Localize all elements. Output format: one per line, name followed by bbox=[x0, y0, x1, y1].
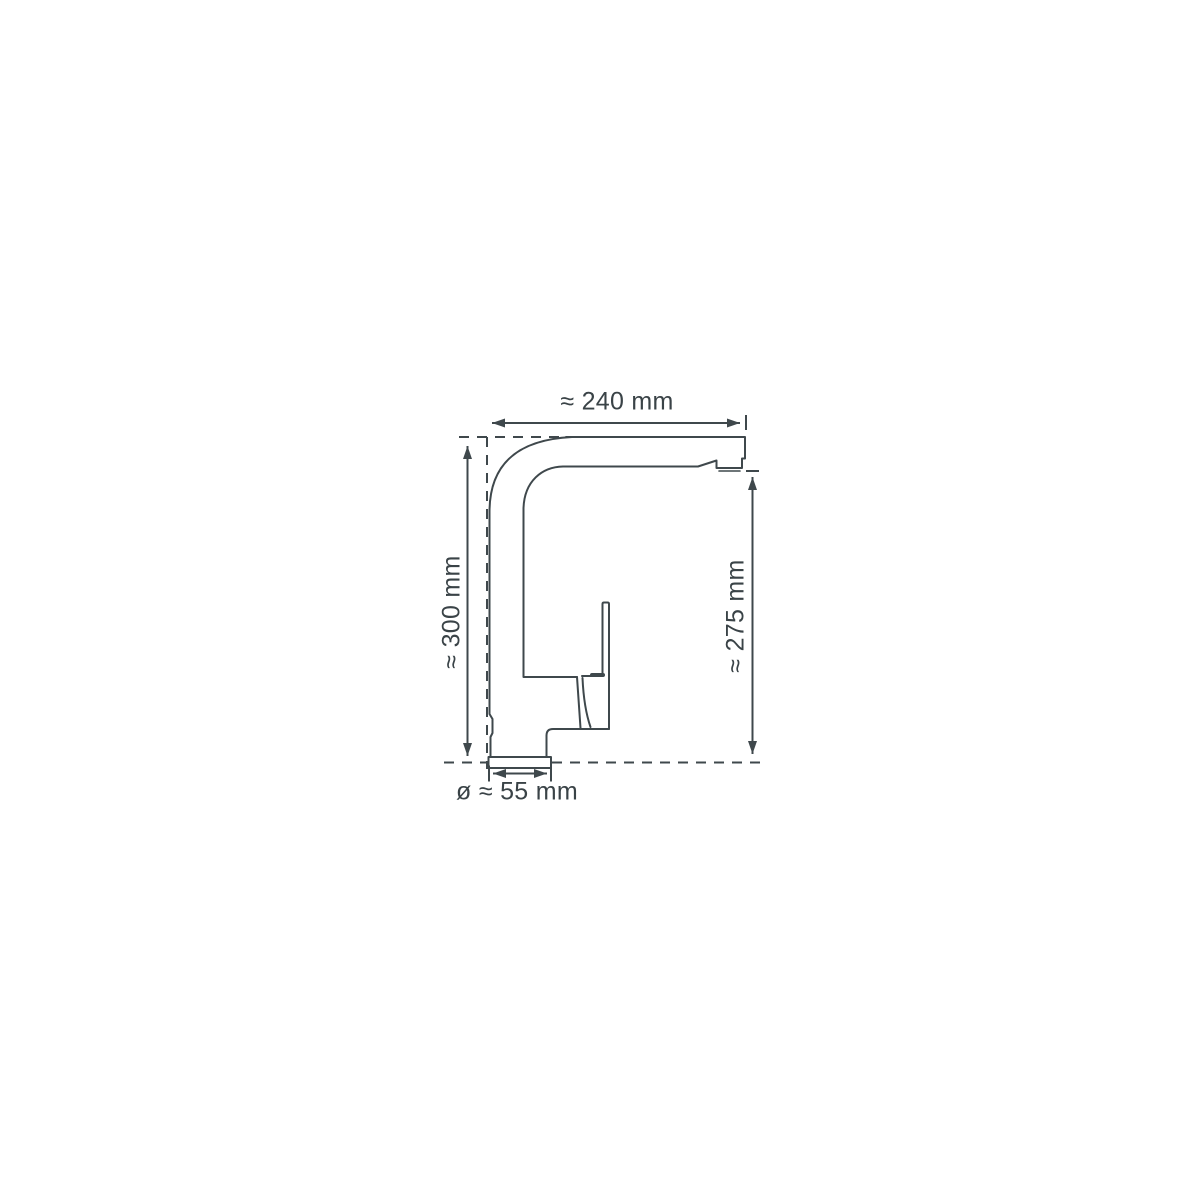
handle-hub-front-edge bbox=[577, 677, 581, 728]
dimension-arrows bbox=[468, 415, 760, 782]
faucet-technical-drawing bbox=[0, 0, 1200, 1200]
base-plate bbox=[489, 757, 552, 768]
faucet-dimension-diagram: ≈ 240 mm ≈ 300 mm ≈ 275 mm ø ≈ 55 mm bbox=[0, 0, 1200, 1200]
width-dimension-label: ≈ 240 mm bbox=[560, 388, 673, 417]
total-height-dimension-label: ≈ 300 mm bbox=[438, 555, 467, 668]
faucet-outline bbox=[489, 437, 746, 768]
body-shoulder-outline bbox=[547, 729, 610, 757]
handle-hub-inner-edge bbox=[583, 678, 591, 727]
spout-outline bbox=[524, 437, 746, 677]
base-diameter-dimension-label: ø ≈ 55 mm bbox=[456, 778, 578, 807]
spout-height-dimension-label: ≈ 275 mm bbox=[722, 559, 751, 672]
handle-lever bbox=[603, 603, 610, 730]
